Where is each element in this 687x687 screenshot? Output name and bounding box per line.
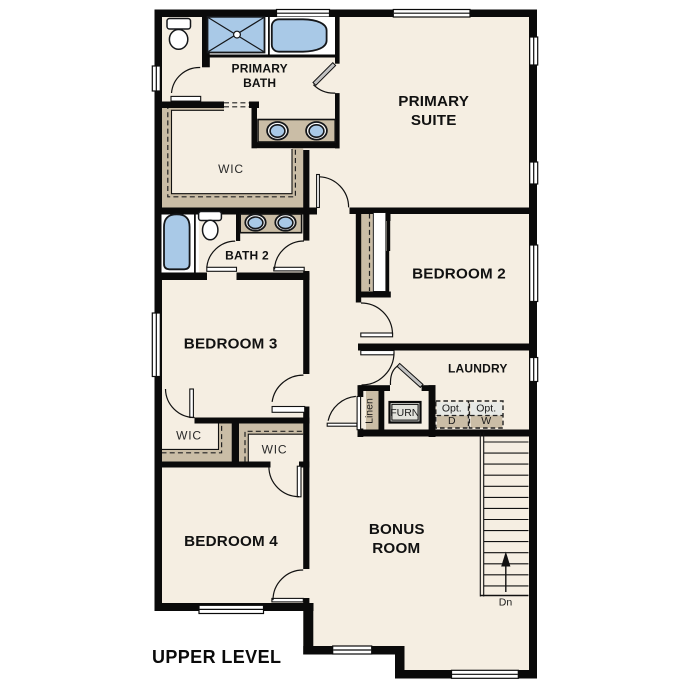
svg-text:WIC: WIC (262, 443, 288, 457)
svg-text:BEDROOM 3: BEDROOM 3 (184, 335, 278, 352)
svg-text:Dn: Dn (499, 597, 513, 609)
svg-text:WIC: WIC (176, 429, 202, 443)
svg-text:Linen: Linen (363, 398, 375, 424)
svg-text:D: D (448, 415, 456, 427)
svg-text:BEDROOM 2: BEDROOM 2 (412, 266, 506, 283)
svg-text:BATH 2: BATH 2 (225, 248, 269, 262)
svg-text:Opt.: Opt. (476, 403, 496, 415)
svg-text:LAUNDRY: LAUNDRY (448, 362, 508, 376)
svg-text:UPPER LEVEL: UPPER LEVEL (152, 647, 281, 667)
svg-text:BATH: BATH (243, 76, 276, 90)
svg-text:ROOM: ROOM (372, 540, 420, 557)
svg-text:PRIMARY: PRIMARY (232, 61, 288, 75)
svg-text:WIC: WIC (218, 162, 244, 176)
svg-text:SUITE: SUITE (411, 112, 457, 129)
svg-text:BONUS: BONUS (369, 521, 425, 538)
svg-text:W: W (481, 415, 491, 427)
svg-text:Opt.: Opt. (442, 403, 462, 415)
svg-text:FURN: FURN (390, 407, 419, 419)
svg-text:BEDROOM 4: BEDROOM 4 (184, 533, 278, 550)
svg-text:PRIMARY: PRIMARY (398, 93, 469, 110)
